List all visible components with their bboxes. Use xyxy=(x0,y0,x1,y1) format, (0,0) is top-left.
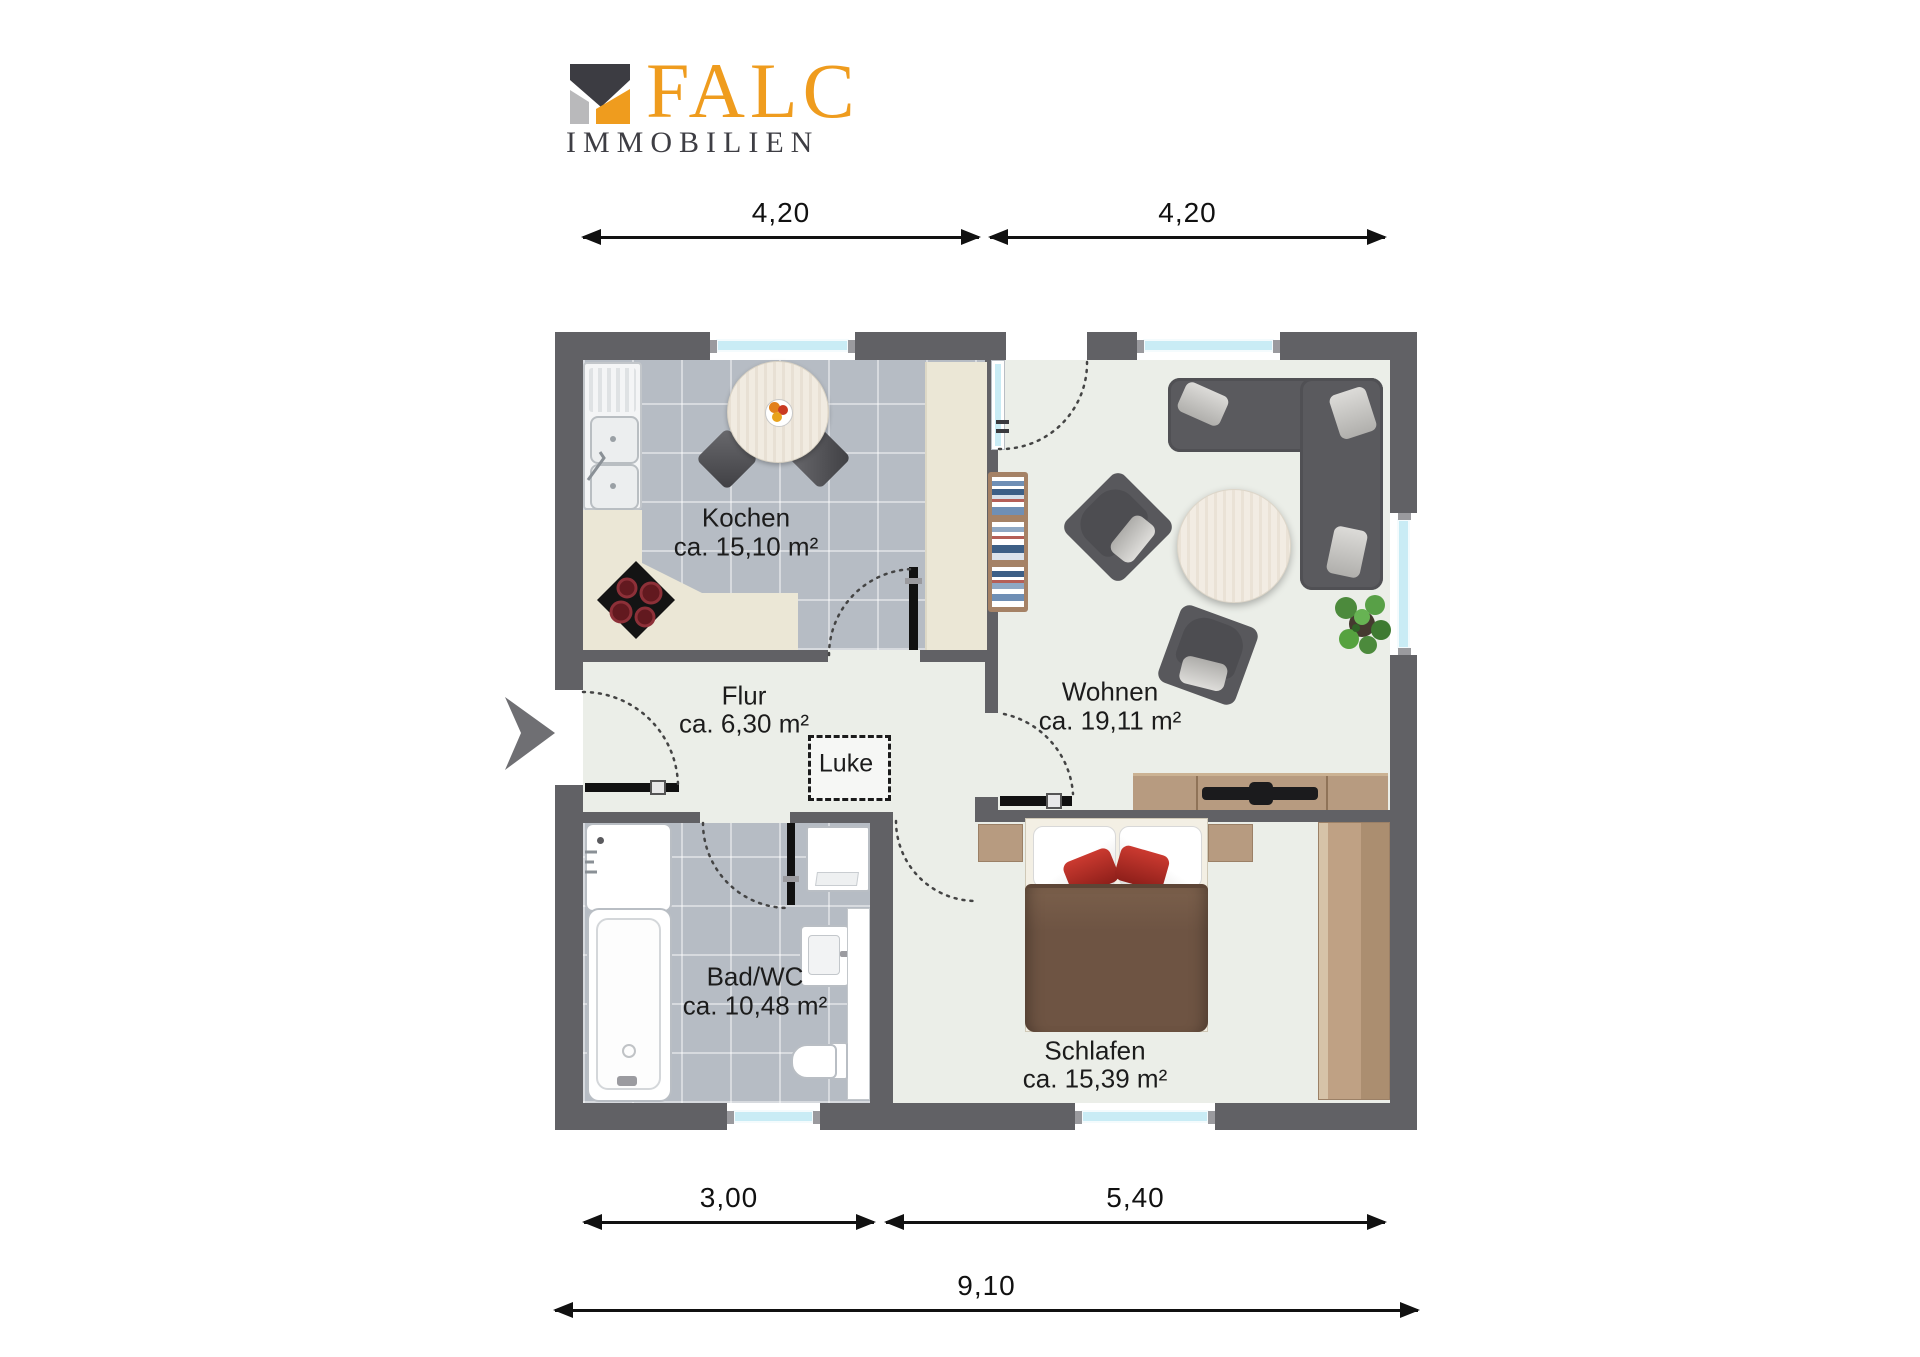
bedroom-door-swing-arc xyxy=(896,821,976,901)
arrowhead xyxy=(1367,1214,1387,1230)
dim-top-right: 4,20 xyxy=(990,236,1385,239)
room-label-bad: Bad/WC xyxy=(707,963,804,992)
arrowhead xyxy=(961,229,981,245)
arrowhead xyxy=(988,229,1008,245)
arrowhead xyxy=(581,229,601,245)
dim-total-width: 9,10 xyxy=(555,1309,1418,1312)
dim-label: 9,10 xyxy=(957,1270,1016,1302)
dim-bottom-schlafen: 5,40 xyxy=(886,1221,1385,1224)
room-label-schlafen: Schlafen xyxy=(1044,1037,1145,1066)
plant-icon xyxy=(1335,595,1391,654)
room-label-kochen: Kochen xyxy=(702,504,790,533)
arrowhead xyxy=(553,1302,573,1318)
luke-label: Luke xyxy=(819,750,873,778)
dim-label: 3,00 xyxy=(700,1182,759,1214)
arrowhead xyxy=(1367,229,1387,245)
dim-top-left: 4,20 xyxy=(583,236,979,239)
room-label-wohnen: Wohnen xyxy=(1062,678,1158,707)
dim-label: 4,20 xyxy=(752,197,811,229)
room-area-wohnen: ca. 19,11 m² xyxy=(1039,707,1182,736)
room-area-kochen: ca. 15,10 m² xyxy=(674,533,819,562)
dim-label: 5,40 xyxy=(1106,1182,1165,1214)
room-area-flur: ca. 6,30 m² xyxy=(679,710,809,739)
arrowhead xyxy=(884,1214,904,1230)
kitchen-door-swing-arc xyxy=(829,569,915,655)
plan-overlay xyxy=(0,0,1920,1357)
entrance-door-swing-arc xyxy=(583,692,678,787)
dim-bottom-bad: 3,00 xyxy=(584,1221,874,1224)
entrance-arrow-icon xyxy=(505,697,555,770)
bath-door-swing-arc xyxy=(703,823,788,908)
room-label-flur: Flur xyxy=(722,682,767,711)
arrowhead xyxy=(582,1214,602,1230)
terrace-door-swing-arc xyxy=(999,361,1087,449)
arrowhead xyxy=(1400,1302,1420,1318)
room-area-schlafen: ca. 15,39 m² xyxy=(1023,1065,1168,1094)
stove xyxy=(597,561,675,639)
floorplan-page: FALC IMMOBILIEN xyxy=(0,0,1920,1357)
bath-faucet-icon xyxy=(585,852,597,872)
faucet-icon xyxy=(588,452,604,480)
arrowhead xyxy=(856,1214,876,1230)
dim-label: 4,20 xyxy=(1158,197,1217,229)
room-area-bad: ca. 10,48 m² xyxy=(683,992,828,1021)
